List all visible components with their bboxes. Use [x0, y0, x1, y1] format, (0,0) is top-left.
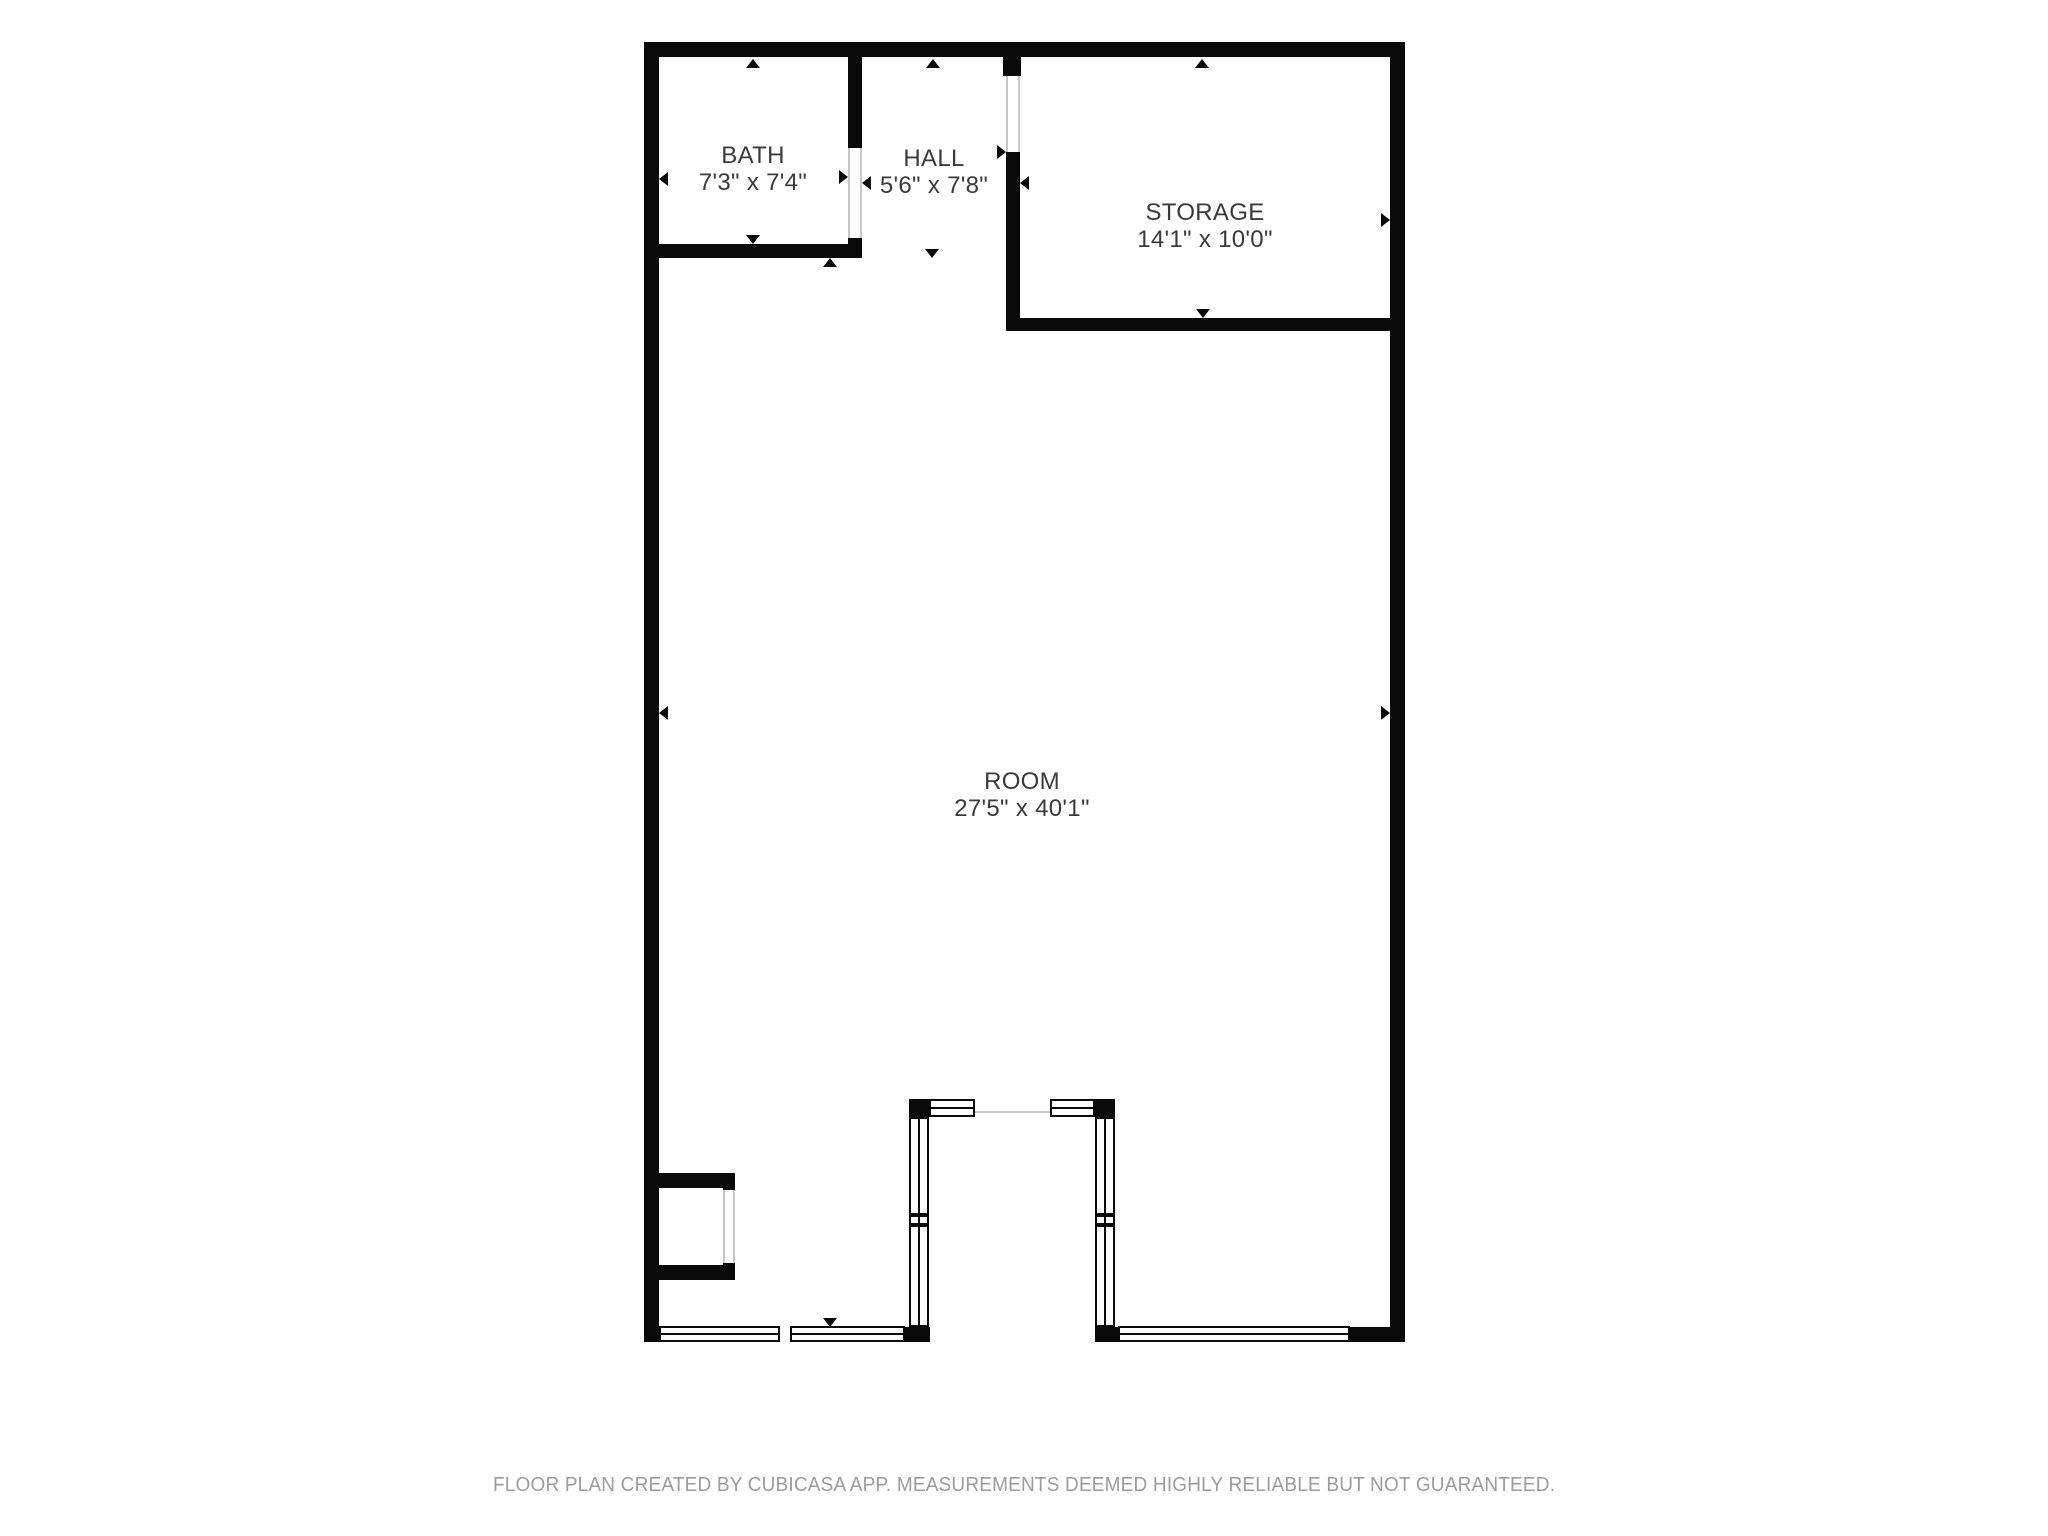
measure-arrow-down	[746, 235, 760, 244]
measure-arrow-right	[1381, 213, 1390, 227]
window-mullion	[1095, 1223, 1115, 1227]
wall-closet-jamb-bottom	[723, 1263, 735, 1280]
floor-plan-canvas: BATH 7'3" x 7'4" HALL 5'6" x 7'8" STORAG…	[0, 0, 2048, 1536]
footer-disclaimer-text: FLOOR PLAN CREATED BY CUBICASA APP. MEAS…	[493, 1474, 1555, 1497]
wall-entry-left-top-block	[909, 1099, 929, 1117]
footer-disclaimer: FLOOR PLAN CREATED BY CUBICASA APP. MEAS…	[0, 1474, 2048, 1497]
window-mullion	[909, 1223, 929, 1227]
wall-bath-right-upper	[848, 57, 862, 148]
hall-dimensions: 5'6" x 7'8"	[834, 172, 1034, 199]
window-entry-left	[929, 1099, 975, 1117]
measure-arrow-up	[1195, 59, 1209, 68]
hall-name: HALL	[834, 145, 1034, 172]
window-entry-right	[1050, 1099, 1095, 1117]
room-label-room: ROOM 27'5" x 40'1"	[902, 768, 1142, 822]
measure-arrow-left	[659, 706, 668, 720]
room-label-hall: HALL 5'6" x 7'8"	[834, 145, 1034, 199]
wall-outer-left	[644, 42, 659, 1342]
wall-entry-right-top-block	[1095, 1099, 1115, 1117]
wall-outer-right	[1390, 42, 1405, 1342]
closet-door-opening	[723, 1190, 735, 1263]
wall-bottom-left-stub-base	[905, 1327, 930, 1342]
wall-bath-bottom	[644, 244, 862, 258]
wall-bottom-right-stub-base	[1095, 1327, 1118, 1342]
wall-closet-jamb-top	[723, 1173, 735, 1190]
room-label-storage: STORAGE 14'1" x 10'0"	[1085, 199, 1325, 253]
measure-arrow-down	[1196, 309, 1210, 318]
room-dimensions: 27'5" x 40'1"	[902, 795, 1142, 822]
window-bottom-right	[1118, 1326, 1350, 1342]
measure-arrow-down	[823, 1318, 837, 1327]
measure-arrow-up	[746, 59, 760, 68]
entry-door-threshold	[975, 1111, 1050, 1113]
measure-arrow-down	[925, 249, 939, 258]
storage-dimensions: 14'1" x 10'0"	[1085, 226, 1325, 253]
window-bottom-left-a	[659, 1326, 780, 1342]
measure-arrow-right	[1381, 706, 1390, 720]
bath-name: BATH	[653, 142, 853, 169]
bath-dimensions: 7'3" x 7'4"	[653, 169, 853, 196]
storage-name: STORAGE	[1085, 199, 1325, 226]
measure-arrow-up	[926, 59, 940, 68]
window-mullion	[1095, 1213, 1115, 1217]
measure-arrow-up	[823, 258, 837, 267]
room-name: ROOM	[902, 768, 1142, 795]
window-entry-side-left	[909, 1117, 929, 1327]
wall-outer-top	[644, 42, 1405, 57]
window-mullion	[909, 1213, 929, 1217]
wall-storage-bottom	[1006, 318, 1405, 331]
storage-door-opening	[1006, 76, 1020, 152]
window-bottom-left-b	[790, 1326, 905, 1342]
wall-hall-storage-top-block	[1003, 57, 1021, 76]
window-entry-side-right	[1095, 1117, 1115, 1327]
wall-bottom-right-corner	[1350, 1327, 1405, 1342]
room-label-bath: BATH 7'3" x 7'4"	[653, 142, 853, 196]
